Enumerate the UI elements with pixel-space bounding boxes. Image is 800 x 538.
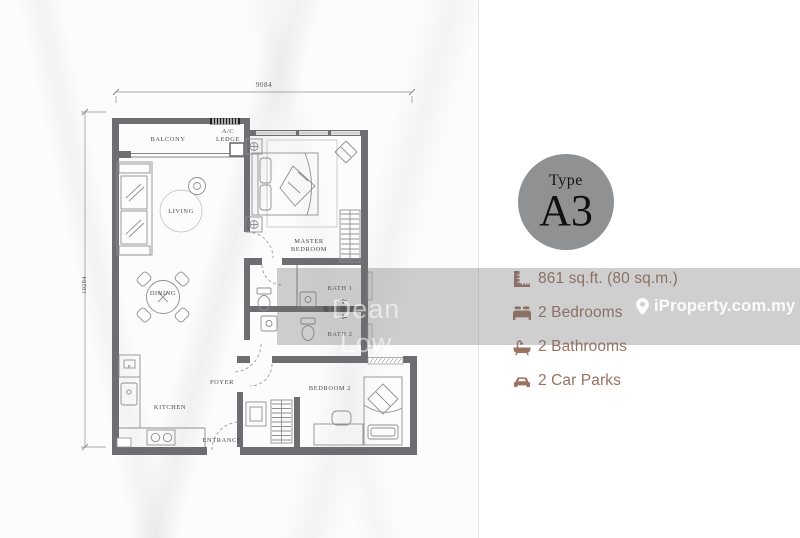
room-label-bedroom2: BEDROOM 2 <box>309 385 351 392</box>
unit-type-code: A3 <box>539 189 593 233</box>
room-label-foyer: FOYER <box>210 379 234 386</box>
detail-row-carparks: 2 Car Parks <box>512 364 678 398</box>
ac-unit-marker <box>230 143 244 156</box>
room-label-dining: DINING <box>150 290 176 297</box>
fridge-label: F <box>128 364 131 369</box>
dimension-height-label: 10284 <box>81 276 88 293</box>
room-label-entrance: ENTRANCE <box>203 437 242 444</box>
location-pin-icon <box>636 298 649 315</box>
car-icon <box>512 373 538 389</box>
room-label-ac-ledge-2: LEDGE <box>216 136 240 143</box>
counter-notch <box>117 438 131 447</box>
agent-watermark: Dean Low <box>304 292 428 326</box>
room-label-balcony: BALCONY <box>150 136 185 143</box>
dimension-width-label: 9084 <box>256 81 272 89</box>
room-label-ac-ledge-1: A/C <box>222 128 234 135</box>
room-label-living: LIVING <box>168 208 194 215</box>
room-label-kitchen: KITCHEN <box>154 404 186 411</box>
listing-floorplan-image: 9084 10284 <box>0 0 800 538</box>
vent-hatch <box>210 118 240 125</box>
room-label-master-1: MASTER <box>294 238 324 245</box>
portal-watermark-text: iProperty.com.my <box>654 297 795 316</box>
portal-watermark: iProperty.com.my <box>636 296 795 316</box>
room-label-master-2: BEDROOM <box>291 246 327 253</box>
detail-carparks-text: 2 Car Parks <box>538 372 621 390</box>
unit-type-badge: Type A3 <box>518 154 614 250</box>
